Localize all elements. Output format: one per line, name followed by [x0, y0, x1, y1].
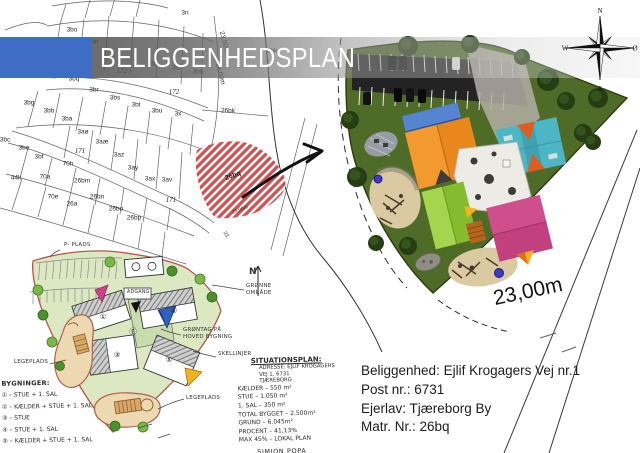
- compass-east-label: Ø: [632, 45, 637, 53]
- building-5-mark: ⑤: [166, 356, 172, 364]
- compass-west-label: W: [562, 45, 569, 53]
- property-postcode: Post nr.: 6731: [361, 381, 580, 400]
- compass-south-label: S: [598, 85, 602, 93]
- center-building-mark: Ⓔ: [129, 327, 137, 336]
- play-dome-icon: [495, 269, 504, 278]
- building-1-mark: ①: [100, 313, 106, 321]
- sketch-building-top: [124, 256, 163, 277]
- sketch-playground-bottom: [95, 393, 161, 427]
- sketch-green-area-label: GRØNNE OMRÅDE: [246, 283, 272, 296]
- banner-accent-block: [0, 37, 92, 78]
- sketch-parking-label: P- PLADS: [64, 242, 91, 249]
- property-info: Beliggenhed: Ejlif Krogagers Vej nr.1 Po…: [361, 362, 580, 437]
- property-matrikel: Matr. Nr.: 26bq: [361, 418, 580, 437]
- property-ejerlav: Ejerlav: Tjæreborg By: [361, 400, 580, 419]
- compass-rose-icon: N Ø S W: [561, 6, 639, 94]
- situationsplan-notes: SITUATIONSPLAN: ADRESSE: EJLIF KROGAGERS…: [237, 354, 358, 453]
- legend-item: ⑤ – KÆLDER + STUE + 1. SAL: [2, 434, 92, 447]
- sketch-playground-label: LEGEPLADS: [14, 359, 48, 366]
- notes-line: MAX 45% – LOKAL PLAN: [239, 434, 357, 446]
- play-dome-icon: [374, 175, 382, 183]
- building-3-mark: ③: [114, 351, 120, 359]
- sketch-building-3: [86, 335, 138, 375]
- page-title: BELIGGENHEDSPLAN: [100, 37, 355, 78]
- legend-item: ② – KÆLDER + STUE + 1. SAL: [2, 400, 92, 413]
- sketch-playground-label: LEGEPLADS: [186, 395, 220, 402]
- sketch-access-label: ADGANG: [127, 290, 149, 297]
- compass-north-label: N: [597, 7, 602, 15]
- property-location: Beliggenhed: Ejlif Krogagers Vej nr.1: [361, 362, 580, 381]
- site-plan-sheet: ① ④ ③ ⑤ Ⓔ 3n 3bo 3bn 3bk 3bi 3bh 3bp 3bq…: [0, 0, 640, 453]
- building-4-mark: ④: [171, 307, 177, 315]
- legend-title: BYGNINGER:: [1, 378, 91, 388]
- notes-signature: SIMION POPA: [257, 445, 357, 453]
- highlighted-parcel-26bq: [196, 141, 286, 218]
- sketch-green-roof-label: GRØNTAG PÅ HOVED BYGNING: [183, 327, 232, 340]
- buildings-legend: BYGNINGER: ① – STUE + 1. SAL ② – KÆLDER …: [1, 378, 92, 447]
- sketch-north-label: N: [249, 269, 257, 276]
